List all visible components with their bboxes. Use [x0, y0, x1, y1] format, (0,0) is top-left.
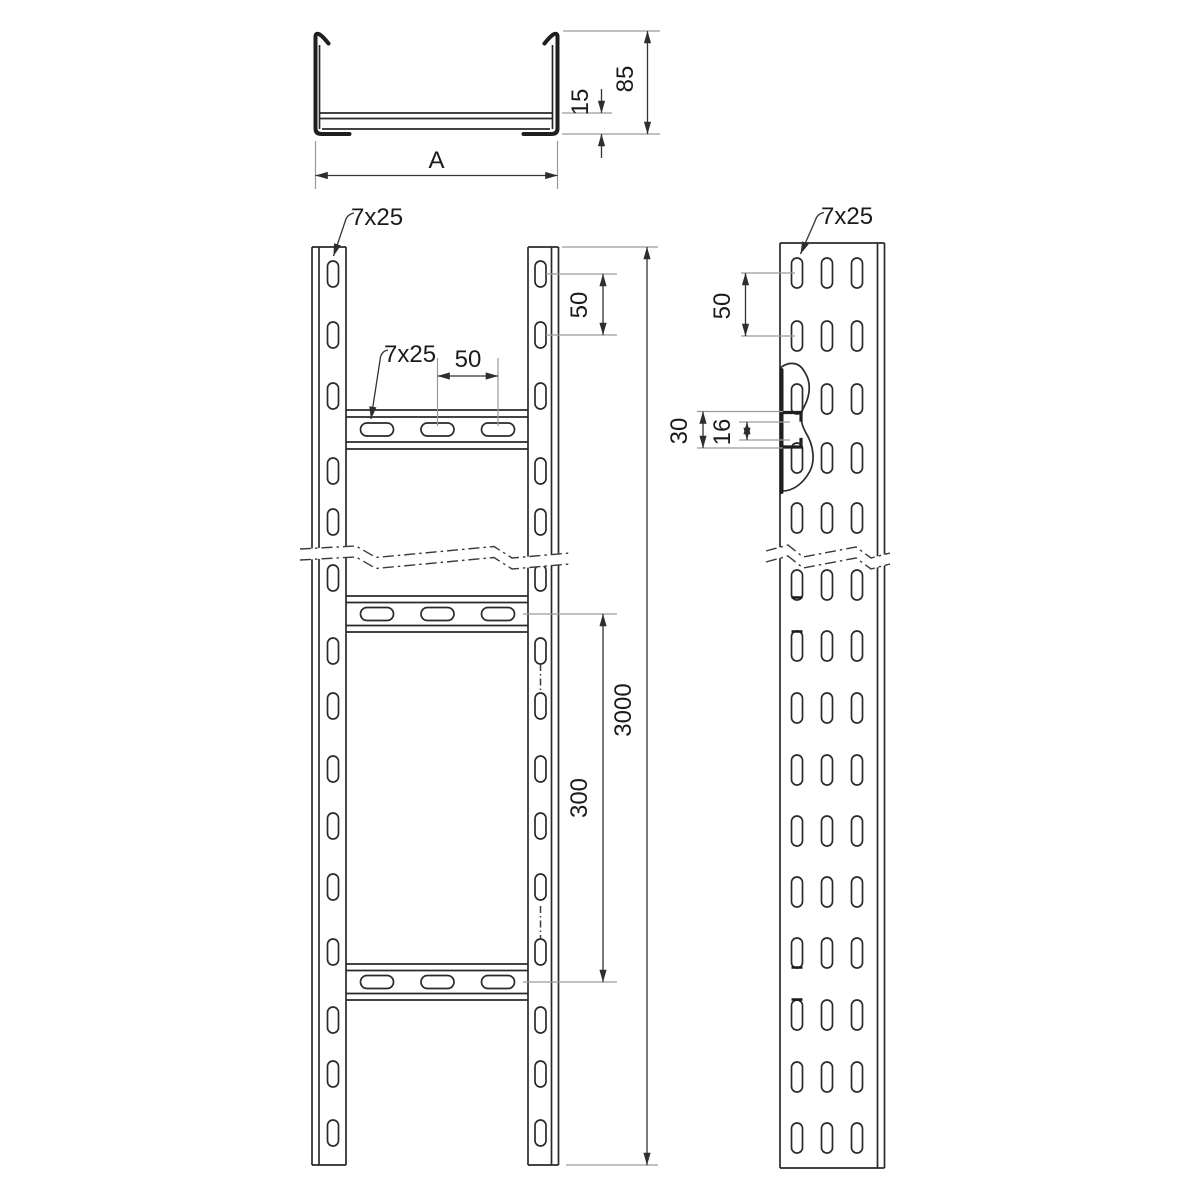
front-view: 7x25 7x25 50 50 300 3000 — [300, 204, 658, 1165]
drawing-canvas: A 15 85 — [0, 0, 1200, 1200]
dim-label-height: 85 — [612, 66, 639, 93]
rung-bottom — [346, 964, 528, 1000]
front-break-line — [300, 546, 570, 569]
label-side-slot-text: 7x25 — [821, 203, 873, 230]
label-rail-slot: 7x25 — [334, 204, 404, 256]
dim-bottom-15: 15 — [562, 89, 660, 158]
dim-label-rung-slot-spacing: 50 — [455, 346, 482, 373]
breakout-outline — [780, 363, 813, 491]
dim-side-slot-spacing: 50 — [709, 273, 795, 336]
drawing-page: A 15 85 — [0, 0, 1200, 1200]
dim-label-bottom-inset: 15 — [567, 89, 594, 116]
dim-label-total-length: 3000 — [610, 683, 637, 736]
dim-label-side-slot-spacing: 50 — [709, 293, 736, 320]
dim-rail-slot-spacing: 50 — [546, 274, 617, 335]
label-rung-slot: 7x25 — [371, 341, 436, 419]
dim-label-rail-slot-spacing: 50 — [566, 292, 593, 319]
dim-rung-pitch: 300 — [523, 614, 617, 982]
dim-rung-slot-spacing: 50 — [438, 346, 499, 426]
dim-label-rung-depth: 30 — [666, 418, 693, 445]
side-view: 7x25 50 30 16 — [666, 203, 890, 1168]
rung-middle — [346, 596, 528, 632]
front-left-rail-slots — [328, 261, 339, 1146]
label-rung-slot-text: 7x25 — [384, 341, 436, 368]
side-rail-slots — [792, 258, 863, 1153]
cross-section-view: A 15 85 — [316, 31, 661, 189]
label-side-slot: 7x25 — [801, 203, 874, 254]
dim-height-85: 85 — [563, 31, 660, 134]
dim-width-A: A — [316, 141, 558, 189]
dim-total-length: 3000 — [562, 247, 658, 1165]
channel-body — [316, 34, 558, 134]
dim-label-rung-opening: 16 — [709, 419, 736, 446]
dim-rung-opening: 16 — [709, 419, 790, 446]
rung-section-profile — [784, 413, 801, 448]
dim-label-rung-pitch: 300 — [566, 778, 593, 818]
label-rail-slot-text: 7x25 — [351, 204, 403, 231]
front-right-rail-slots — [535, 261, 546, 1146]
dim-label-width: A — [428, 147, 444, 174]
side-break-line — [766, 545, 890, 569]
